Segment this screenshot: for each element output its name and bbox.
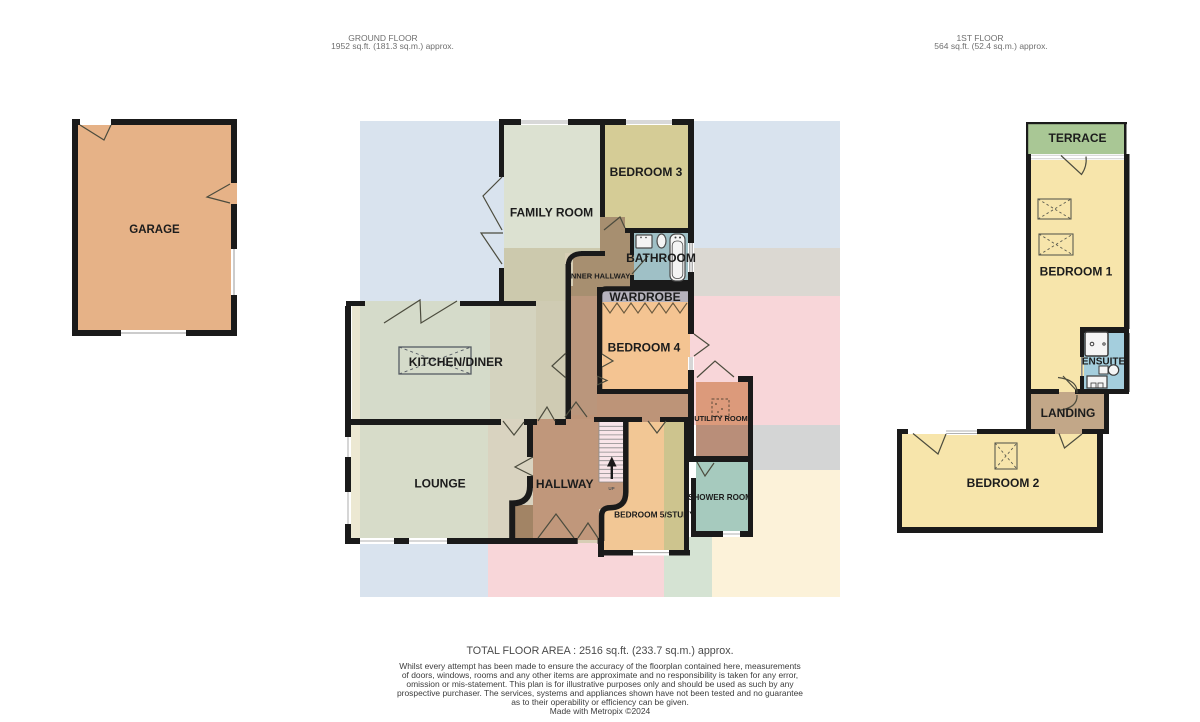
svg-text:WARDROBE: WARDROBE bbox=[609, 290, 680, 304]
svg-text:HALLWAY: HALLWAY bbox=[536, 477, 594, 491]
svg-text:BATHROOM: BATHROOM bbox=[626, 251, 696, 265]
svg-text:ENSUITE: ENSUITE bbox=[1082, 357, 1126, 368]
svg-text:FAMILY ROOM: FAMILY ROOM bbox=[510, 206, 593, 220]
svg-text:BEDROOM 5/STUDY: BEDROOM 5/STUDY bbox=[614, 510, 695, 520]
svg-text:BEDROOM 2: BEDROOM 2 bbox=[967, 476, 1040, 490]
svg-text:UP: UP bbox=[608, 486, 614, 491]
svg-text:BEDROOM 1: BEDROOM 1 bbox=[1040, 264, 1113, 278]
svg-text:KITCHEN/DINER: KITCHEN/DINER bbox=[409, 355, 503, 369]
svg-text:TERRACE: TERRACE bbox=[1048, 131, 1106, 145]
svg-text:SHOWER ROOM: SHOWER ROOM bbox=[688, 493, 752, 502]
svg-text:LANDING: LANDING bbox=[1041, 406, 1096, 420]
svg-text:GARAGE: GARAGE bbox=[129, 224, 180, 236]
svg-text:BEDROOM 3: BEDROOM 3 bbox=[610, 165, 683, 179]
svg-text:INNER HALLWAY: INNER HALLWAY bbox=[569, 271, 630, 280]
svg-text:LOUNGE: LOUNGE bbox=[414, 477, 465, 491]
svg-text:BEDROOM 4: BEDROOM 4 bbox=[608, 340, 681, 354]
svg-text:UTILITY ROOM: UTILITY ROOM bbox=[694, 414, 748, 423]
